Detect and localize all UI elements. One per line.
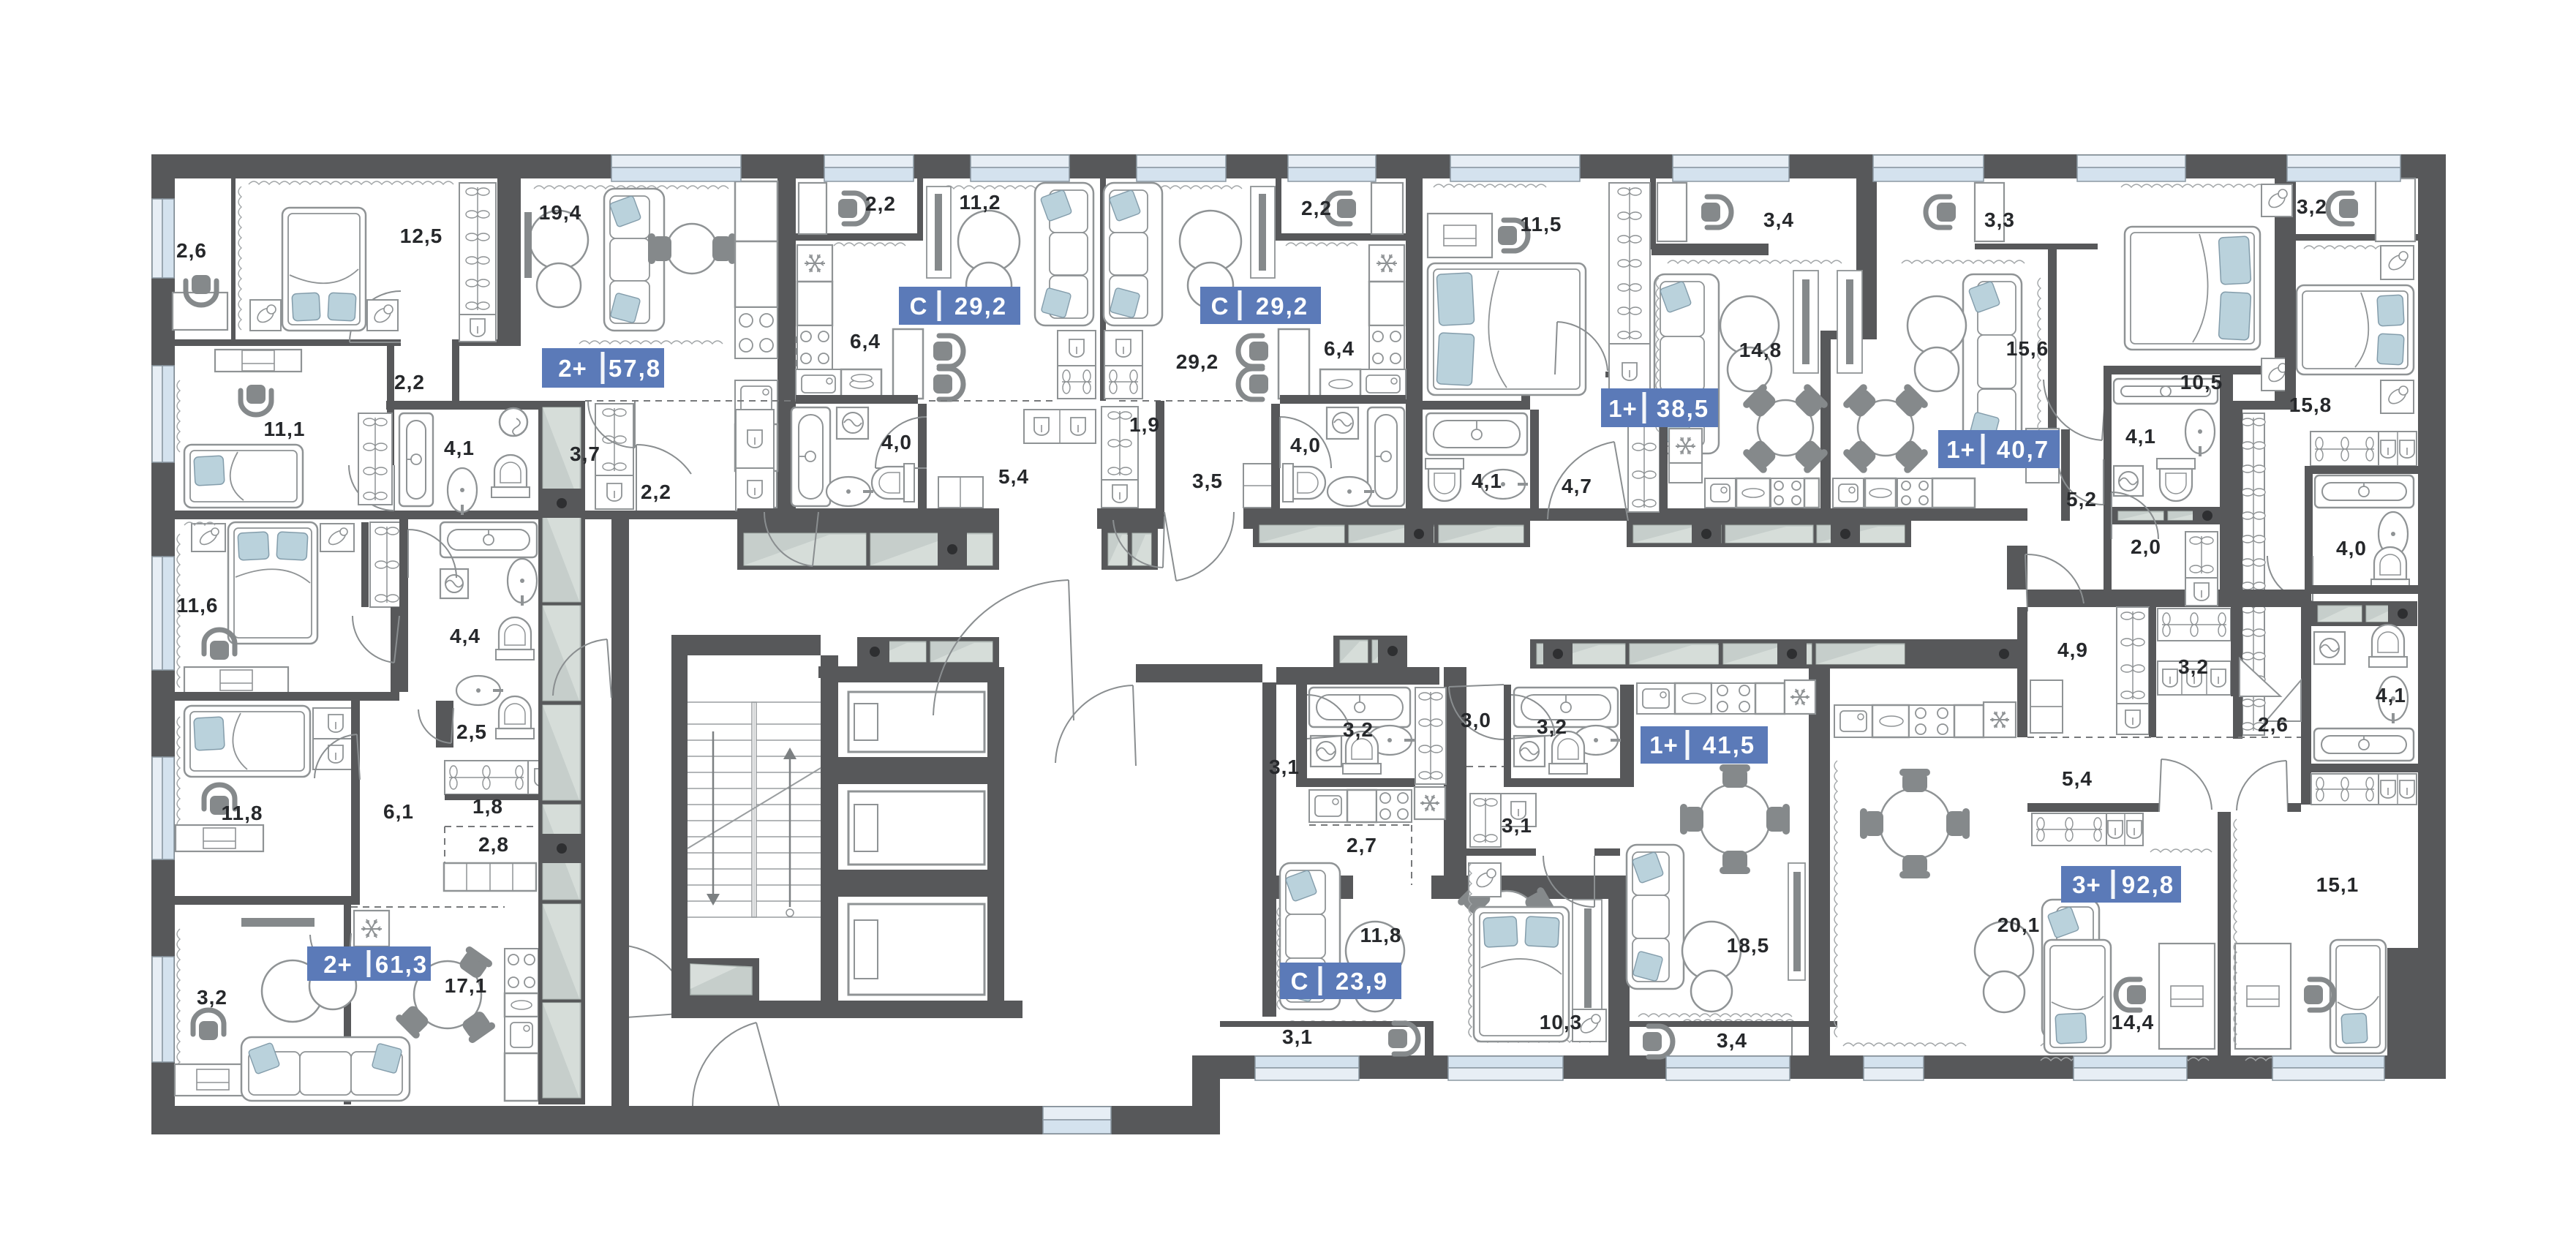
svg-text:2,2: 2,2 [394, 371, 425, 394]
svg-text:12,5: 12,5 [400, 225, 443, 247]
svg-text:4,1: 4,1 [2376, 684, 2406, 707]
svg-text:3,1: 3,1 [1282, 1025, 1313, 1048]
svg-text:4,1: 4,1 [444, 437, 475, 459]
svg-text:2,7: 2,7 [1347, 834, 1377, 856]
svg-text:2+: 2+ [323, 951, 353, 978]
svg-text:11,8: 11,8 [222, 802, 263, 824]
svg-text:19,4: 19,4 [539, 201, 582, 224]
svg-text:20,1: 20,1 [1997, 914, 2041, 936]
svg-text:3,1: 3,1 [1269, 756, 1300, 778]
svg-text:3,2: 3,2 [1343, 718, 1374, 741]
svg-text:3,0: 3,0 [1461, 709, 1491, 731]
svg-text:1,8: 1,8 [472, 795, 503, 818]
svg-text:61,3: 61,3 [375, 951, 428, 978]
svg-text:1+: 1+ [1649, 731, 1679, 758]
svg-text:1+: 1+ [1946, 436, 1976, 463]
svg-text:4,9: 4,9 [2057, 639, 2088, 661]
svg-text:2,8: 2,8 [478, 833, 509, 856]
svg-text:92,8: 92,8 [2122, 871, 2174, 898]
svg-text:10,3: 10,3 [1540, 1011, 1583, 1033]
svg-text:3,2: 3,2 [2178, 655, 2209, 678]
svg-text:15,1: 15,1 [2316, 873, 2360, 896]
svg-text:2,0: 2,0 [2131, 535, 2161, 558]
svg-text:11,8: 11,8 [1360, 924, 1402, 946]
svg-text:40,7: 40,7 [1997, 436, 2049, 463]
svg-text:3,3: 3,3 [1984, 208, 2015, 231]
svg-text:10,5: 10,5 [2180, 371, 2223, 394]
svg-text:29,2: 29,2 [1256, 293, 1308, 320]
svg-text:С: С [1291, 968, 1309, 995]
svg-text:29,2: 29,2 [954, 293, 1007, 320]
svg-text:2,2: 2,2 [865, 192, 896, 215]
svg-text:5,2: 5,2 [2066, 488, 2097, 511]
svg-text:2,5: 2,5 [456, 720, 487, 743]
svg-text:1,9: 1,9 [1129, 413, 1160, 436]
svg-text:15,8: 15,8 [2289, 394, 2332, 416]
svg-text:11,1: 11,1 [264, 418, 306, 440]
svg-text:6,4: 6,4 [850, 330, 881, 353]
svg-text:14,8: 14,8 [1739, 339, 1782, 361]
svg-text:6,4: 6,4 [1324, 337, 1355, 360]
svg-text:3,7: 3,7 [570, 443, 600, 465]
svg-text:4,0: 4,0 [2336, 537, 2367, 560]
svg-text:2,6: 2,6 [176, 239, 207, 262]
svg-text:3,2: 3,2 [2297, 195, 2327, 218]
svg-text:С: С [1211, 293, 1229, 320]
svg-text:2+: 2+ [558, 355, 587, 382]
svg-text:15,6: 15,6 [2006, 337, 2049, 360]
svg-text:4,1: 4,1 [1472, 470, 1502, 492]
svg-text:4,1: 4,1 [2125, 425, 2156, 448]
svg-text:3,2: 3,2 [1537, 715, 1567, 738]
svg-text:2,2: 2,2 [641, 481, 671, 503]
svg-text:4,4: 4,4 [450, 625, 481, 647]
svg-text:4,0: 4,0 [1290, 434, 1321, 456]
svg-text:1+: 1+ [1608, 395, 1638, 422]
svg-text:4,7: 4,7 [1562, 475, 1592, 497]
svg-text:С: С [910, 293, 928, 320]
svg-text:14,4: 14,4 [2112, 1011, 2155, 1033]
svg-text:41,5: 41,5 [1703, 731, 1755, 758]
svg-text:11,6: 11,6 [177, 594, 219, 617]
svg-text:11,2: 11,2 [960, 191, 1001, 214]
svg-text:3+: 3+ [2072, 871, 2101, 898]
svg-text:3,2: 3,2 [197, 986, 227, 1009]
svg-text:29,2: 29,2 [1176, 350, 1219, 373]
svg-text:38,5: 38,5 [1657, 395, 1709, 422]
svg-text:17,1: 17,1 [445, 974, 488, 997]
svg-text:6,1: 6,1 [383, 800, 414, 823]
svg-text:11,5: 11,5 [1521, 213, 1562, 236]
svg-text:57,8: 57,8 [609, 355, 661, 382]
svg-text:23,9: 23,9 [1336, 968, 1388, 995]
svg-text:2,6: 2,6 [2258, 713, 2289, 736]
svg-text:3,5: 3,5 [1192, 470, 1223, 492]
svg-text:3,4: 3,4 [1763, 208, 1794, 231]
svg-text:18,5: 18,5 [1727, 934, 1770, 957]
svg-text:3,4: 3,4 [1717, 1029, 1747, 1052]
svg-text:5,4: 5,4 [2062, 767, 2093, 790]
svg-text:3,1: 3,1 [1502, 814, 1532, 837]
svg-text:5,4: 5,4 [998, 465, 1029, 488]
svg-text:2,2: 2,2 [1301, 197, 1332, 219]
svg-text:4,0: 4,0 [881, 431, 912, 453]
